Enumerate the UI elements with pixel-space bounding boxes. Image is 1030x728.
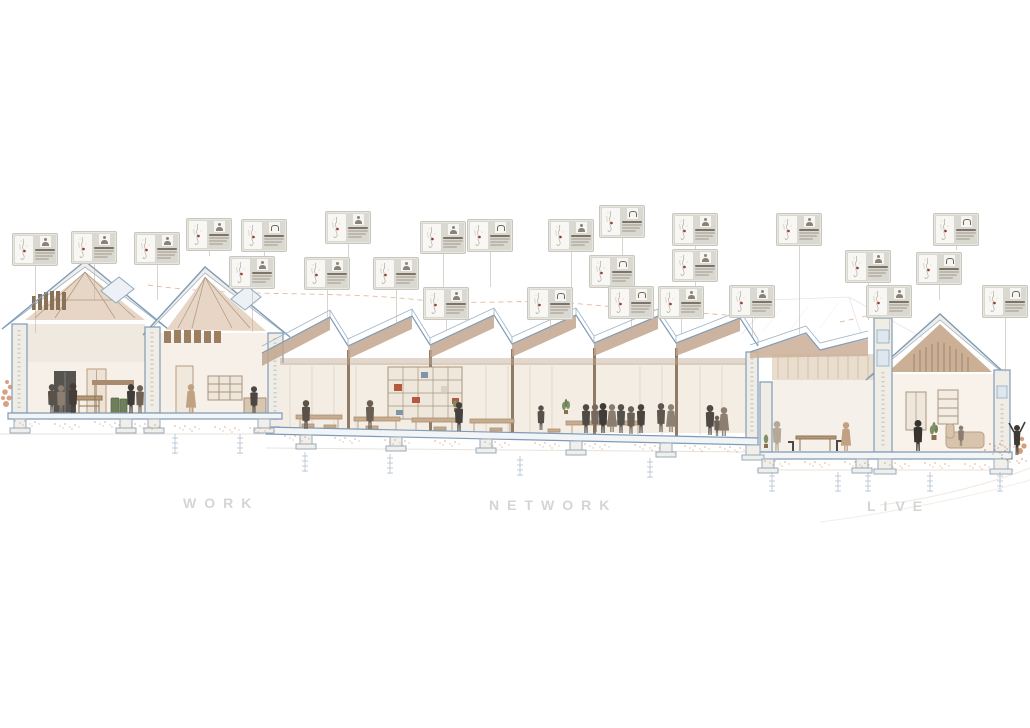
card-connector-line <box>35 266 36 333</box>
portrait-thumbnail <box>894 288 905 299</box>
card-connector-line <box>157 265 158 300</box>
card-title-bar <box>348 227 368 229</box>
persona-card <box>608 286 654 319</box>
map-thumbnail <box>985 288 1003 315</box>
card-connector-line <box>490 252 491 287</box>
persona-card <box>241 219 287 252</box>
card-connector-line <box>209 251 210 256</box>
persona-card <box>527 287 573 320</box>
portrait-thumbnail <box>576 222 587 233</box>
map-thumbnail <box>675 252 693 279</box>
map-thumbnail <box>661 289 679 316</box>
map-thumbnail <box>376 260 394 287</box>
zone-label-live: LIVE <box>867 498 930 514</box>
map-thumbnail <box>189 221 207 248</box>
portrait-thumbnail <box>555 290 566 301</box>
card-text-bar <box>35 252 55 254</box>
uk-map-sketch <box>232 259 250 286</box>
portrait-thumbnail <box>162 235 173 246</box>
map-thumbnail <box>611 289 629 316</box>
portrait-thumbnail <box>451 290 462 301</box>
persona-cards-layer <box>0 0 1030 728</box>
card-connector-line <box>443 254 444 287</box>
portrait-thumbnail <box>873 253 884 264</box>
card-text-bar <box>889 310 903 312</box>
persona-card <box>325 211 371 244</box>
portrait-thumbnail <box>332 260 343 271</box>
card-text-bar <box>252 281 266 283</box>
card-title-bar <box>631 302 651 304</box>
card-title-bar <box>695 265 715 267</box>
zone-label-network: NETWORK <box>489 497 617 513</box>
card-caption <box>681 289 701 316</box>
card-text-bar <box>1005 307 1023 309</box>
uk-map-sketch <box>244 222 262 249</box>
persona-card <box>467 219 513 252</box>
map-thumbnail <box>232 259 250 286</box>
card-caption <box>348 214 368 241</box>
card-connector-line <box>252 289 253 332</box>
card-text-bar <box>868 272 886 274</box>
card-caption <box>327 260 347 287</box>
portrait-thumbnail <box>257 259 268 270</box>
card-title-bar <box>446 303 466 305</box>
card-text-bar <box>446 309 464 311</box>
card-text-bar <box>799 238 813 240</box>
card-text-bar <box>571 241 589 243</box>
persona-card <box>866 285 912 318</box>
card-text-bar <box>443 243 461 245</box>
card-connector-line <box>681 319 682 334</box>
persona-card <box>658 286 704 319</box>
uk-map-sketch <box>779 216 797 243</box>
map-thumbnail <box>848 253 866 280</box>
card-title-bar <box>209 234 229 236</box>
card-connector-line <box>571 252 572 287</box>
card-text-bar <box>939 274 957 276</box>
card-caption <box>264 222 284 249</box>
card-text-bar <box>443 240 463 242</box>
card-text-bar <box>252 275 272 277</box>
card-text-bar <box>752 304 772 306</box>
portrait-thumbnail <box>636 289 647 300</box>
card-text-bar <box>622 227 640 229</box>
card-text-bar <box>443 246 457 248</box>
uk-map-sketch <box>423 224 441 251</box>
card-text-bar <box>446 312 460 314</box>
card-text-bar <box>264 241 282 243</box>
card-connector-line <box>94 264 95 300</box>
portrait-thumbnail <box>495 222 506 233</box>
card-text-bar <box>348 230 368 232</box>
card-text-bar <box>264 238 284 240</box>
card-text-bar <box>752 307 770 309</box>
card-connector-line <box>939 285 940 300</box>
uk-map-sketch <box>985 288 1003 315</box>
uk-map-sketch <box>307 260 325 287</box>
card-caption <box>209 221 229 248</box>
card-caption <box>956 216 976 243</box>
card-text-bar <box>157 251 177 253</box>
portrait-thumbnail <box>40 236 51 247</box>
card-title-bar <box>799 229 819 231</box>
portrait-thumbnail <box>804 216 815 227</box>
card-caption <box>490 222 510 249</box>
card-text-bar <box>348 233 366 235</box>
card-text-bar <box>209 237 229 239</box>
card-title-bar <box>868 266 888 268</box>
card-text-bar <box>799 232 819 234</box>
card-text-bar <box>209 243 223 245</box>
portrait-thumbnail <box>353 214 364 225</box>
persona-card <box>71 231 117 264</box>
card-caption <box>443 224 463 251</box>
uk-map-sketch <box>426 290 444 317</box>
card-title-bar <box>35 249 55 251</box>
card-text-bar <box>956 232 976 234</box>
map-thumbnail <box>551 222 569 249</box>
map-thumbnail <box>74 234 92 261</box>
card-caption <box>252 259 272 286</box>
card-text-bar <box>695 268 715 270</box>
card-text-bar <box>868 269 888 271</box>
card-text-bar <box>695 238 709 240</box>
portrait-thumbnail <box>401 260 412 271</box>
uk-map-sketch <box>661 289 679 316</box>
persona-card <box>420 221 466 254</box>
persona-card <box>229 256 275 289</box>
card-text-bar <box>612 280 626 282</box>
card-caption <box>1005 288 1025 315</box>
uk-map-sketch <box>848 253 866 280</box>
map-thumbnail <box>602 208 620 235</box>
card-caption <box>939 255 959 282</box>
card-title-bar <box>889 301 909 303</box>
card-text-bar <box>1005 304 1025 306</box>
card-title-bar <box>252 272 272 274</box>
persona-card <box>845 250 891 283</box>
card-text-bar <box>571 238 591 240</box>
card-text-bar <box>446 306 466 308</box>
card-text-bar <box>631 311 645 313</box>
uk-map-sketch <box>74 234 92 261</box>
uk-map-sketch <box>328 214 346 241</box>
card-text-bar <box>327 282 341 284</box>
card-title-bar <box>939 268 959 270</box>
card-caption <box>35 236 55 263</box>
persona-card <box>672 213 718 246</box>
persona-card <box>548 219 594 252</box>
card-text-bar <box>622 230 636 232</box>
uk-map-sketch <box>732 288 750 315</box>
persona-card <box>916 252 962 285</box>
map-thumbnail <box>592 258 610 285</box>
card-caption <box>695 216 715 243</box>
card-connector-line <box>956 246 957 250</box>
persona-card <box>589 255 635 288</box>
portrait-thumbnail <box>627 208 638 219</box>
card-text-bar <box>550 306 570 308</box>
card-connector-line <box>1005 318 1006 372</box>
card-text-bar <box>695 271 713 273</box>
card-text-bar <box>752 310 766 312</box>
card-connector-line <box>446 320 447 330</box>
uk-map-sketch <box>15 236 33 263</box>
card-text-bar <box>1005 310 1019 312</box>
card-text-bar <box>490 238 510 240</box>
card-title-bar <box>264 235 284 237</box>
card-text-bar <box>348 236 362 238</box>
zone-label-work: WORK <box>183 495 259 511</box>
card-title-bar <box>571 235 591 237</box>
card-caption <box>550 290 570 317</box>
card-text-bar <box>157 254 175 256</box>
card-caption <box>157 235 177 262</box>
card-connector-line <box>327 290 328 330</box>
card-text-bar <box>327 279 345 281</box>
card-connector-line <box>695 282 696 286</box>
card-title-bar <box>443 237 463 239</box>
card-title-bar <box>490 235 510 237</box>
portrait-thumbnail <box>214 221 225 232</box>
card-text-bar <box>631 305 651 307</box>
card-text-bar <box>612 274 632 276</box>
portrait-thumbnail <box>700 252 711 263</box>
persona-card <box>12 233 58 266</box>
portrait-thumbnail <box>269 222 280 233</box>
card-text-bar <box>695 235 713 237</box>
map-thumbnail <box>779 216 797 243</box>
card-caption <box>612 258 632 285</box>
card-text-bar <box>157 257 171 259</box>
card-text-bar <box>252 278 270 280</box>
card-connector-line <box>889 318 890 340</box>
uk-map-sketch <box>602 208 620 235</box>
portrait-thumbnail <box>700 216 711 227</box>
uk-map-sketch <box>530 290 548 317</box>
map-thumbnail <box>423 224 441 251</box>
card-title-bar <box>956 229 976 231</box>
card-title-bar <box>612 271 632 273</box>
uk-map-sketch <box>592 258 610 285</box>
card-caption <box>396 260 416 287</box>
persona-card <box>982 285 1028 318</box>
card-title-bar <box>327 273 347 275</box>
uk-map-sketch <box>189 221 207 248</box>
card-text-bar <box>622 224 642 226</box>
map-thumbnail <box>530 290 548 317</box>
persona-card <box>186 218 232 251</box>
persona-card <box>134 232 180 265</box>
card-text-bar <box>571 244 585 246</box>
card-caption <box>446 290 466 317</box>
map-thumbnail <box>244 222 262 249</box>
card-text-bar <box>550 312 564 314</box>
persona-card <box>304 257 350 290</box>
architectural-section-board: WORK NETWORK LIVE <box>0 0 1030 728</box>
uk-map-sketch <box>376 260 394 287</box>
card-caption <box>94 234 114 261</box>
card-title-bar <box>94 247 114 249</box>
card-caption <box>799 216 819 243</box>
persona-card <box>423 287 469 320</box>
persona-card <box>672 249 718 282</box>
card-caption <box>631 289 651 316</box>
card-text-bar <box>889 307 907 309</box>
card-text-bar <box>681 311 695 313</box>
card-text-bar <box>612 277 630 279</box>
portrait-thumbnail <box>757 288 768 299</box>
card-caption <box>622 208 642 235</box>
card-title-bar <box>622 221 642 223</box>
card-text-bar <box>490 244 504 246</box>
persona-card <box>373 257 419 290</box>
map-thumbnail <box>470 222 488 249</box>
card-title-bar <box>1005 301 1025 303</box>
card-title-bar <box>681 302 701 304</box>
card-text-bar <box>956 238 970 240</box>
card-text-bar <box>956 235 974 237</box>
card-title-bar <box>157 248 177 250</box>
card-text-bar <box>799 235 817 237</box>
uk-map-sketch <box>936 216 954 243</box>
card-caption <box>695 252 715 279</box>
card-text-bar <box>396 279 414 281</box>
card-connector-line <box>348 244 349 257</box>
card-title-bar <box>550 303 570 305</box>
portrait-thumbnail <box>1010 288 1021 299</box>
persona-card <box>933 213 979 246</box>
card-text-bar <box>94 250 114 252</box>
card-title-bar <box>695 229 715 231</box>
portrait-thumbnail <box>961 216 972 227</box>
portrait-thumbnail <box>686 289 697 300</box>
map-thumbnail <box>869 288 887 315</box>
card-text-bar <box>631 308 649 310</box>
card-text-bar <box>396 276 416 278</box>
map-thumbnail <box>137 235 155 262</box>
card-text-bar <box>681 305 701 307</box>
uk-map-sketch <box>919 255 937 282</box>
card-title-bar <box>396 273 416 275</box>
map-thumbnail <box>936 216 954 243</box>
uk-map-sketch <box>675 216 693 243</box>
card-title-bar <box>752 301 772 303</box>
card-text-bar <box>695 232 715 234</box>
map-thumbnail <box>732 288 750 315</box>
portrait-thumbnail <box>99 234 110 245</box>
map-thumbnail <box>307 260 325 287</box>
card-caption <box>868 253 888 280</box>
persona-card <box>599 205 645 238</box>
portrait-thumbnail <box>617 258 628 269</box>
card-connector-line <box>622 238 623 255</box>
portrait-thumbnail <box>448 224 459 235</box>
uk-map-sketch <box>470 222 488 249</box>
card-text-bar <box>94 253 112 255</box>
card-text-bar <box>681 308 699 310</box>
card-connector-line <box>752 318 753 336</box>
card-text-bar <box>868 275 882 277</box>
portrait-thumbnail <box>944 255 955 266</box>
card-text-bar <box>35 255 53 257</box>
card-text-bar <box>490 241 508 243</box>
card-text-bar <box>396 282 410 284</box>
card-caption <box>752 288 772 315</box>
uk-map-sketch <box>137 235 155 262</box>
uk-map-sketch <box>611 289 629 316</box>
card-text-bar <box>939 277 953 279</box>
card-text-bar <box>550 309 568 311</box>
card-text-bar <box>889 304 909 306</box>
card-connector-line <box>799 246 800 334</box>
uk-map-sketch <box>869 288 887 315</box>
card-caption <box>889 288 909 315</box>
persona-card <box>776 213 822 246</box>
card-text-bar <box>94 256 108 258</box>
card-caption <box>571 222 591 249</box>
map-thumbnail <box>919 255 937 282</box>
map-thumbnail <box>15 236 33 263</box>
card-text-bar <box>35 258 49 260</box>
card-text-bar <box>327 276 347 278</box>
card-connector-line <box>550 320 551 332</box>
uk-map-sketch <box>675 252 693 279</box>
card-text-bar <box>264 244 278 246</box>
map-thumbnail <box>426 290 444 317</box>
uk-map-sketch <box>551 222 569 249</box>
card-connector-line <box>396 290 397 330</box>
card-text-bar <box>695 274 709 276</box>
card-text-bar <box>209 240 227 242</box>
map-thumbnail <box>328 214 346 241</box>
card-connector-line <box>631 319 632 334</box>
map-thumbnail <box>675 216 693 243</box>
persona-card <box>729 285 775 318</box>
card-text-bar <box>939 271 959 273</box>
